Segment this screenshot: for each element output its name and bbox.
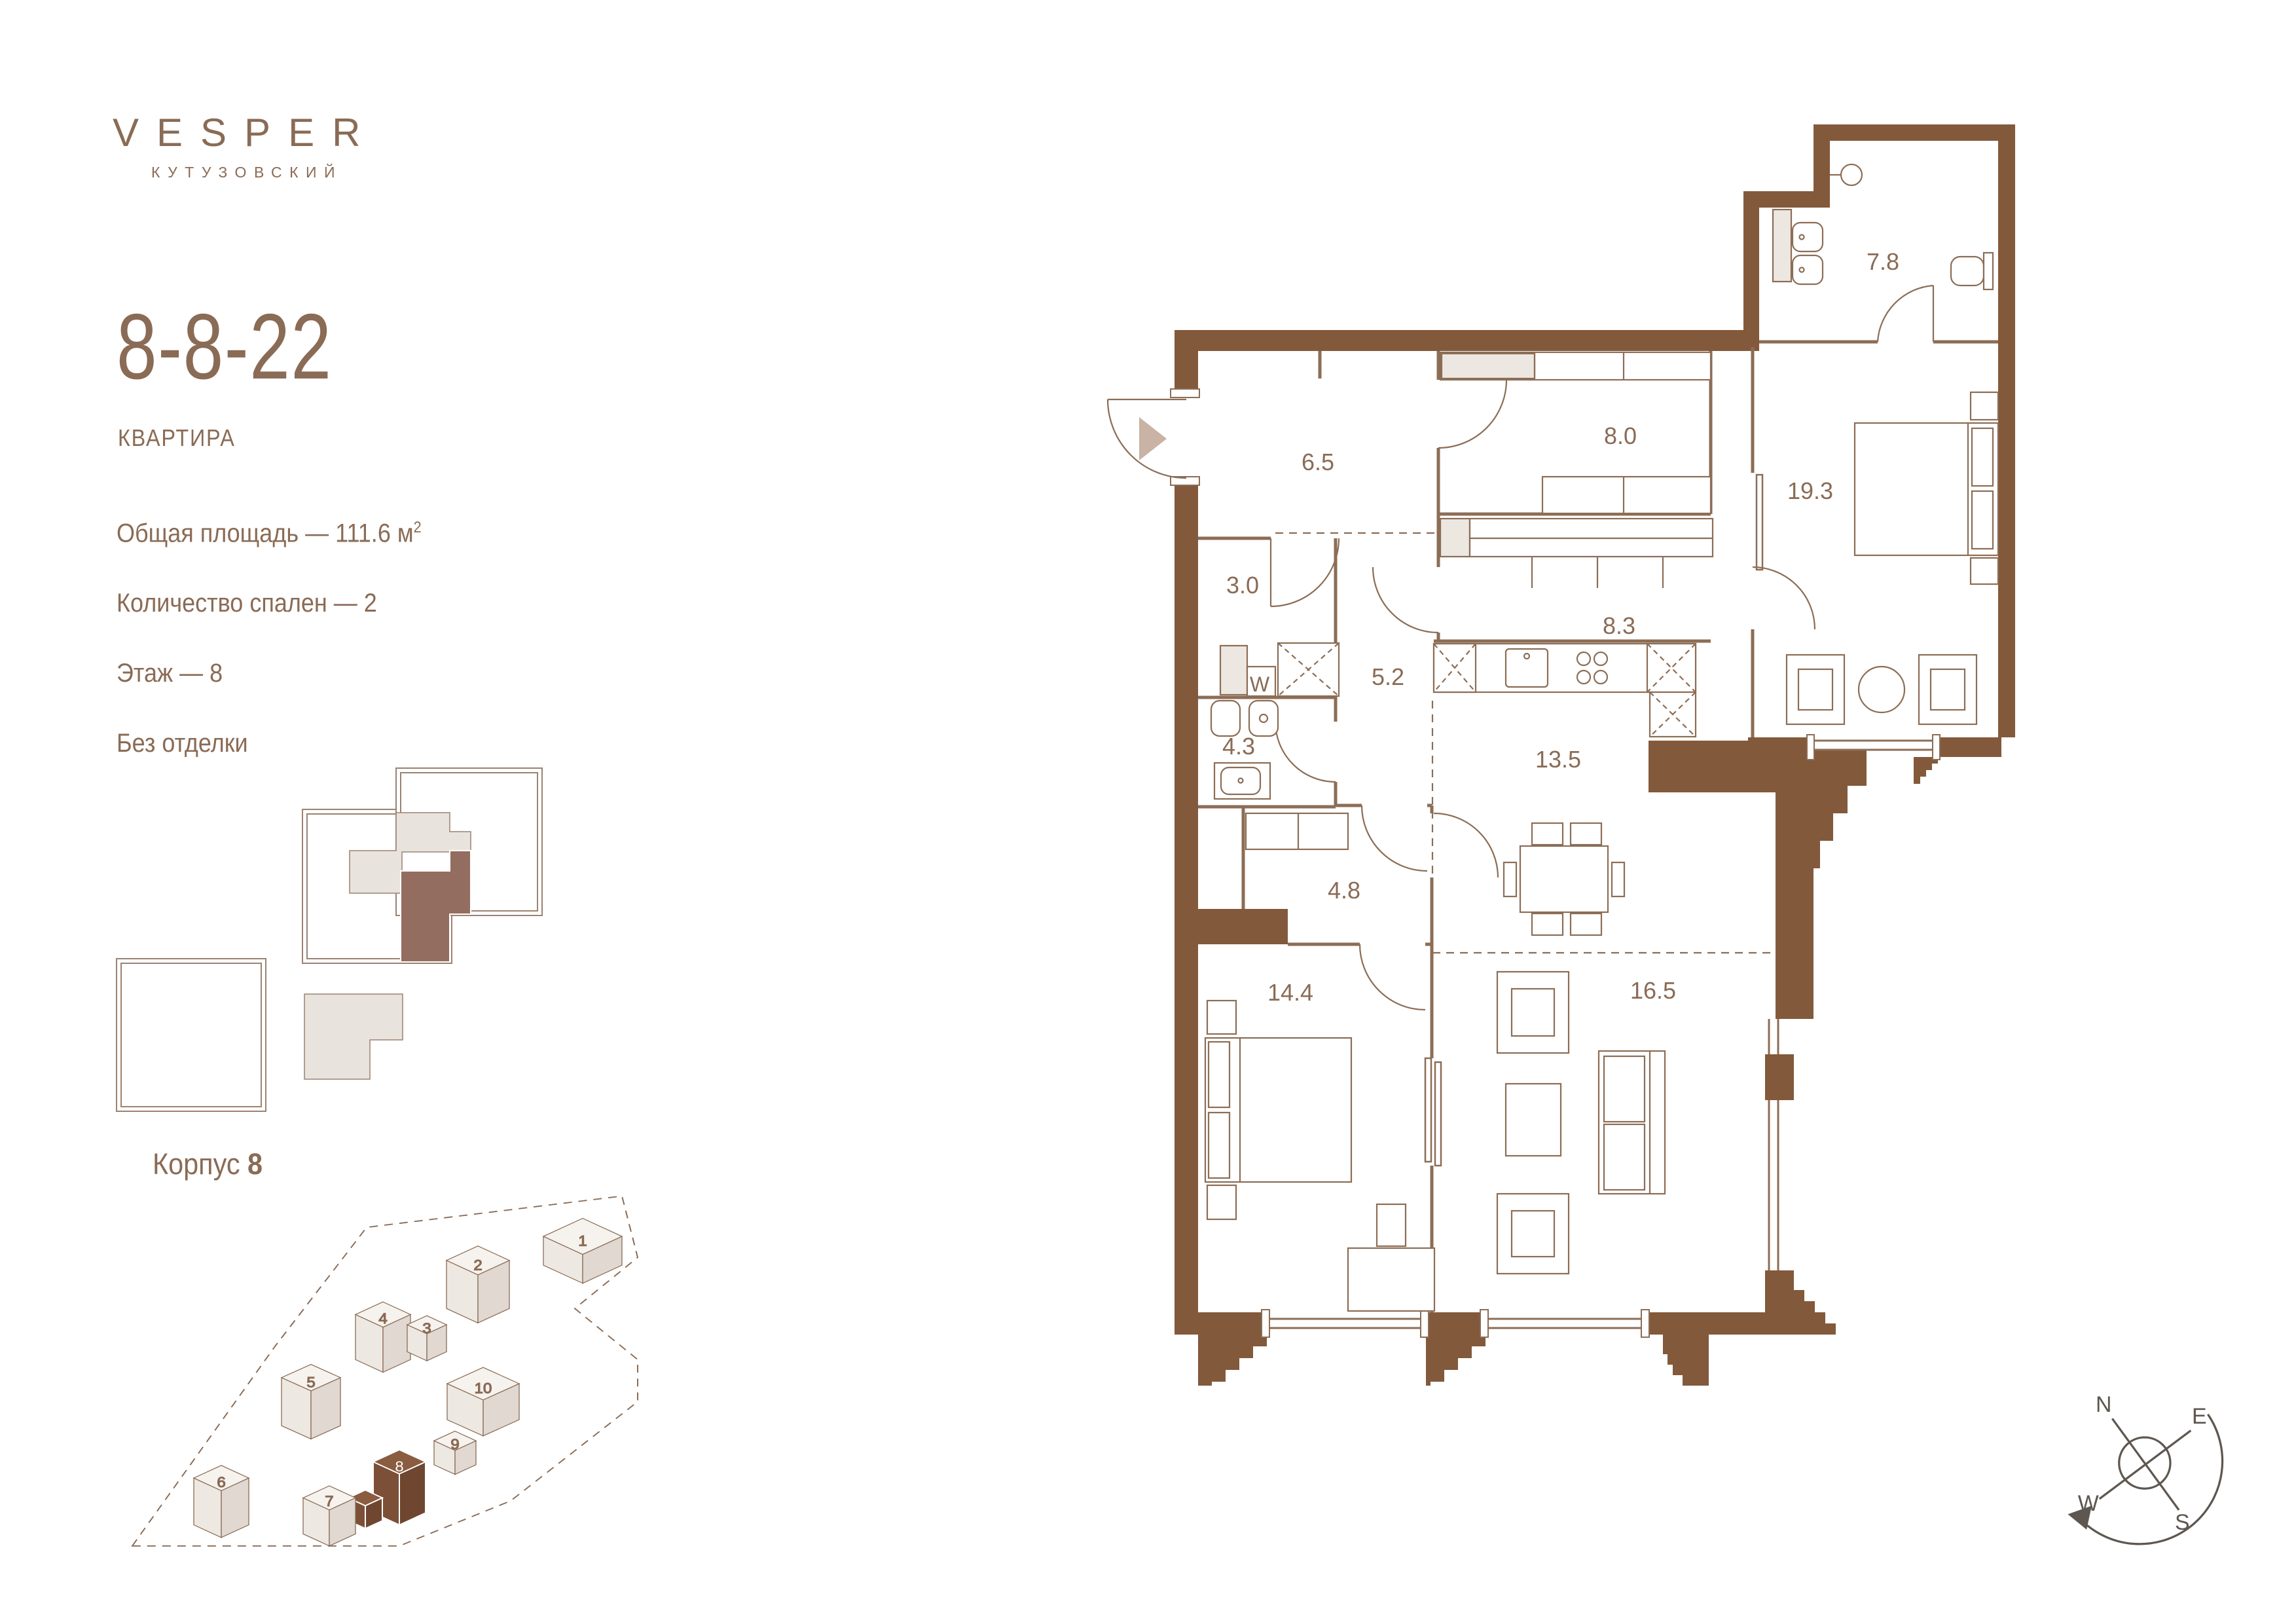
bedroom-door (1360, 944, 1425, 1010)
dining-chair (1571, 823, 1601, 845)
toilet-tank (1984, 253, 1993, 289)
room-label-hallway: 6.5 (1302, 449, 1334, 475)
bathroom-master-door (1878, 286, 1933, 342)
compass-label-south: S (2175, 1510, 2190, 1535)
sliding-door-bedroom-master (1757, 475, 1762, 570)
site-building-1: 1 (543, 1218, 622, 1283)
site-building-9: 9 (434, 1431, 476, 1474)
room-label-bedroom: 14.4 (1267, 979, 1313, 1006)
pillow (1209, 1042, 1230, 1107)
dining-chair (1612, 862, 1624, 896)
dining-chair (1532, 823, 1563, 845)
sink (1793, 223, 1823, 251)
nightstand (1971, 558, 1998, 584)
neighbor-apartment-area (304, 994, 403, 1079)
compass-rotation-arc (2083, 1414, 2223, 1544)
wardrobe-cabinet (1440, 519, 1470, 557)
kitchen-sink (1506, 649, 1548, 687)
page: VESPER КУТУЗОВСКИЙ 8-8-22 КВАРТИРА Общая… (0, 0, 2296, 1624)
armchair (1497, 972, 1569, 1053)
area-superscript: 2 (414, 519, 422, 536)
facade-steps (1794, 1290, 1836, 1335)
site-buildings: 1 2 4 3 (194, 1218, 622, 1545)
desk-chair (1377, 1204, 1406, 1246)
facade-steps (1426, 1335, 1485, 1386)
room-label-kitchen-dining: 13.5 (1535, 746, 1581, 773)
apartment-type-label: КВАРТИРА (118, 424, 236, 452)
site-building-number: 4 (378, 1310, 388, 1327)
nightstand (1971, 392, 1998, 420)
pillow (1972, 491, 1993, 549)
brand-sublogo: КУТУЗОВСКИЙ (151, 164, 342, 181)
site-building-number: 9 (450, 1436, 459, 1452)
site-building-number: 6 (217, 1474, 225, 1490)
sliding-door-living (1425, 1058, 1431, 1162)
site-building-7: 7 (303, 1486, 355, 1546)
room-label-bedroom-master: 19.3 (1787, 477, 1833, 504)
site-plan: 1 2 4 3 (59, 1185, 648, 1552)
facade-steps (1663, 1335, 1709, 1386)
sink (1793, 255, 1823, 284)
room-label-bathroom: 4.3 (1222, 733, 1255, 760)
nightstand (1207, 1001, 1236, 1034)
room-label-living-room: 16.5 (1630, 977, 1676, 1004)
kitchen-door (1434, 813, 1498, 877)
floor-position-diagram (98, 752, 556, 1118)
site-building-number: 5 (306, 1374, 315, 1390)
pillow (1209, 1113, 1230, 1178)
wardrobe-door (1438, 380, 1506, 448)
armchair (1919, 655, 1977, 724)
site-building-8-highlighted: 8 (348, 1450, 426, 1528)
room-label-wardrobe: 8.0 (1604, 422, 1637, 449)
apartment-details: Общая площадь — 111.6 м2 Количество спал… (117, 492, 455, 779)
facade-steps (1198, 1335, 1267, 1386)
room-label-corridor-wardrobe: 8.3 (1603, 612, 1635, 639)
korpus-number: 8 (247, 1147, 263, 1181)
site-building-10: 10 (447, 1367, 519, 1436)
pillow (1972, 428, 1993, 486)
hall-closet (1246, 813, 1348, 849)
vanity-counter (1773, 210, 1791, 282)
site-building-number: 2 (473, 1257, 482, 1273)
bathroom-door (1275, 722, 1336, 782)
nightstand (1207, 1185, 1236, 1219)
compass-label-east: E (2192, 1404, 2207, 1429)
site-building-number: 10 (475, 1380, 492, 1397)
sliding-door-living (1435, 1062, 1441, 1166)
room-label-laundry: 3.0 (1226, 572, 1259, 599)
korpus-label: Корпус 8 (153, 1147, 263, 1181)
sliding-doors (1425, 475, 1762, 1166)
brand-logo: VESPER (113, 110, 378, 155)
compass-labels: N E W S (2078, 1392, 2207, 1535)
floor-plan: 6.5 3.0 4.3 5.2 8.0 8.3 7.8 19.3 13.5 4.… (1100, 98, 2115, 1395)
site-building-number: 3 (422, 1320, 431, 1337)
site-building-number: 7 (325, 1493, 333, 1509)
dining-table (1520, 846, 1608, 912)
armchair (1787, 655, 1844, 724)
bidet (1249, 701, 1278, 736)
site-building-number: 8 (395, 1458, 403, 1475)
side-table (1859, 667, 1904, 712)
detail-total-area: Общая площадь — 111.6 м2 (117, 492, 422, 568)
dining-chair (1532, 913, 1563, 935)
toilet (1211, 701, 1240, 736)
laundry-door (1271, 538, 1339, 606)
position-building-outline (117, 959, 266, 1111)
wardrobe-shelf (1542, 477, 1711, 513)
detail-bedrooms: Количество спален — 2 (117, 568, 422, 638)
site-building-2: 2 (446, 1246, 509, 1323)
toilet (1951, 257, 1984, 286)
corridor-door (1373, 567, 1438, 633)
armchair (1497, 1194, 1569, 1274)
site-building-3: 3 (407, 1316, 446, 1361)
site-building-number: 1 (578, 1233, 587, 1249)
entrance-arrow (1139, 417, 1167, 460)
ceiling-lamp (1841, 164, 1862, 185)
room-label-hall: 4.8 (1328, 877, 1360, 904)
detail-floor: Этаж — 8 (117, 638, 422, 709)
facade-steps (1914, 757, 1938, 784)
hall-door (1362, 805, 1427, 871)
room-label-corridor: 5.2 (1372, 663, 1404, 690)
apartment-number: 8-8-22 (117, 293, 333, 401)
desk (1348, 1248, 1434, 1311)
coffee-table (1506, 1084, 1561, 1156)
windows (1267, 741, 1938, 1328)
site-building-5: 5 (282, 1365, 340, 1439)
compass-label-north: N (2096, 1392, 2111, 1417)
exterior-walls (1175, 124, 2015, 1386)
site-building-6: 6 (194, 1466, 249, 1538)
compass-label-west: W (2078, 1491, 2099, 1516)
room-label-bathroom-master: 7.8 (1867, 248, 1899, 275)
site-building-4: 4 (355, 1302, 410, 1372)
dining-chair (1504, 862, 1516, 896)
bedroom-master-door (1753, 567, 1815, 629)
compass: N E W S (2052, 1359, 2249, 1555)
washer-label: W (1250, 673, 1270, 696)
dining-chair (1571, 913, 1601, 935)
laundry-shelf (1220, 646, 1247, 695)
